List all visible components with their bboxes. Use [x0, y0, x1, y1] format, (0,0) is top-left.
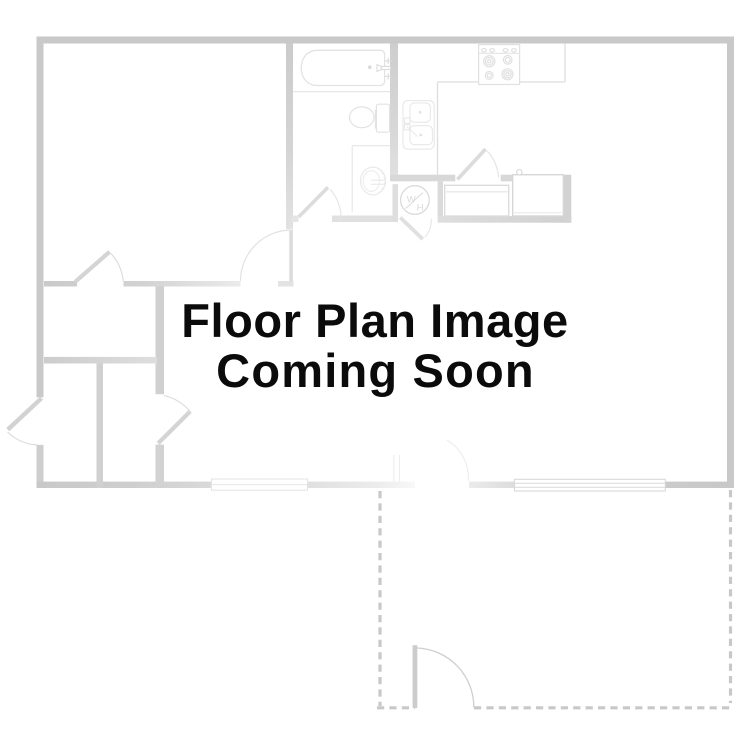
svg-text:Coming Soon: Coming Soon	[216, 344, 535, 397]
svg-text:W: W	[407, 195, 416, 206]
svg-text:H: H	[417, 203, 424, 214]
svg-text:Floor Plan Image: Floor Plan Image	[181, 294, 569, 347]
